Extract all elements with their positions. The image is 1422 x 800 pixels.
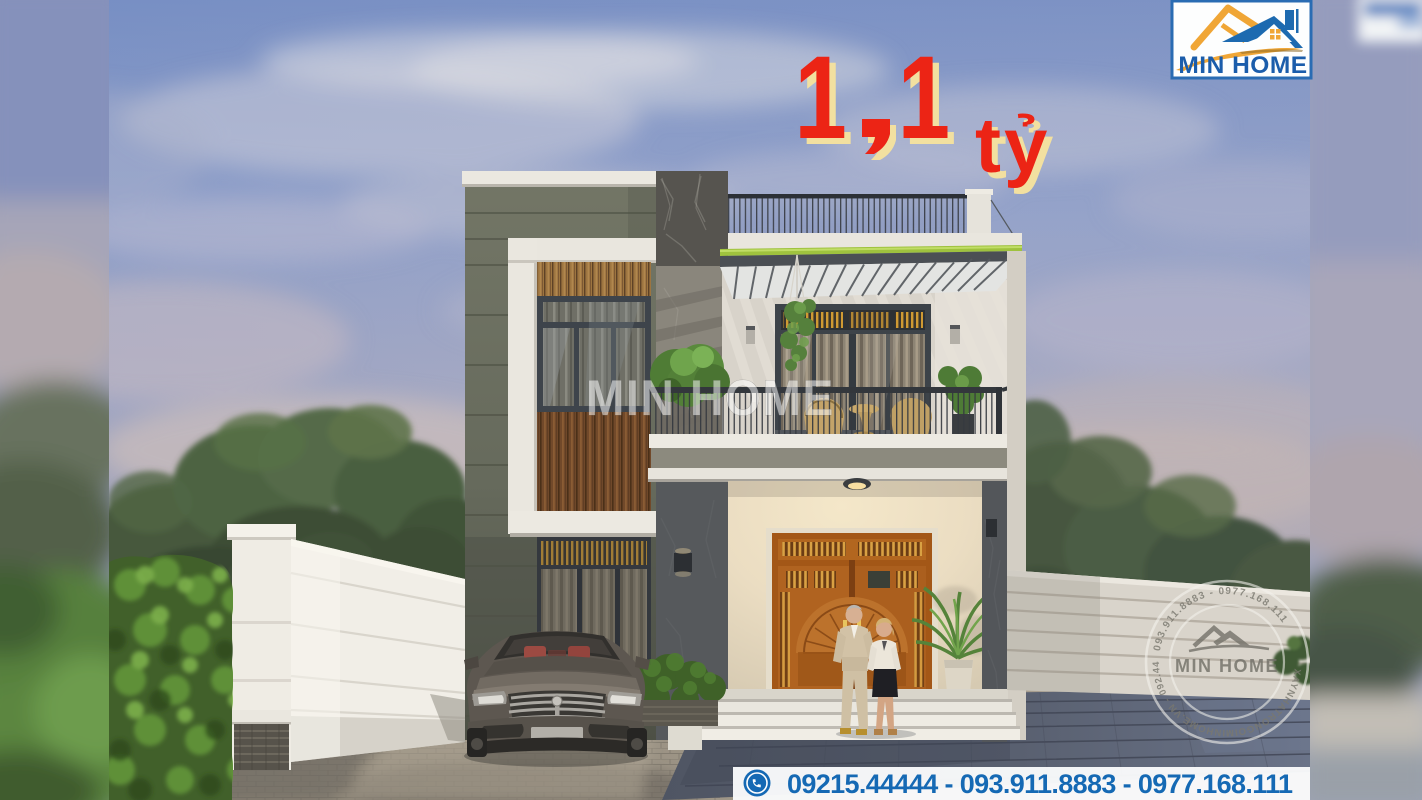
svg-text:09215.44444 - 093.911.8883 - 0: 09215.44444 - 093.911.8883 - 0977.168.11… [787,769,1293,799]
svg-text:tỷ: tỷ [975,101,1050,189]
svg-text:1: 1 [794,31,846,164]
svg-text:MIN HOME: MIN HOME [1175,656,1279,676]
svg-text:MIN HOME: MIN HOME [586,370,835,426]
svg-text:1: 1 [898,31,950,164]
svg-text:MIN HOME: MIN HOME [1178,52,1307,79]
